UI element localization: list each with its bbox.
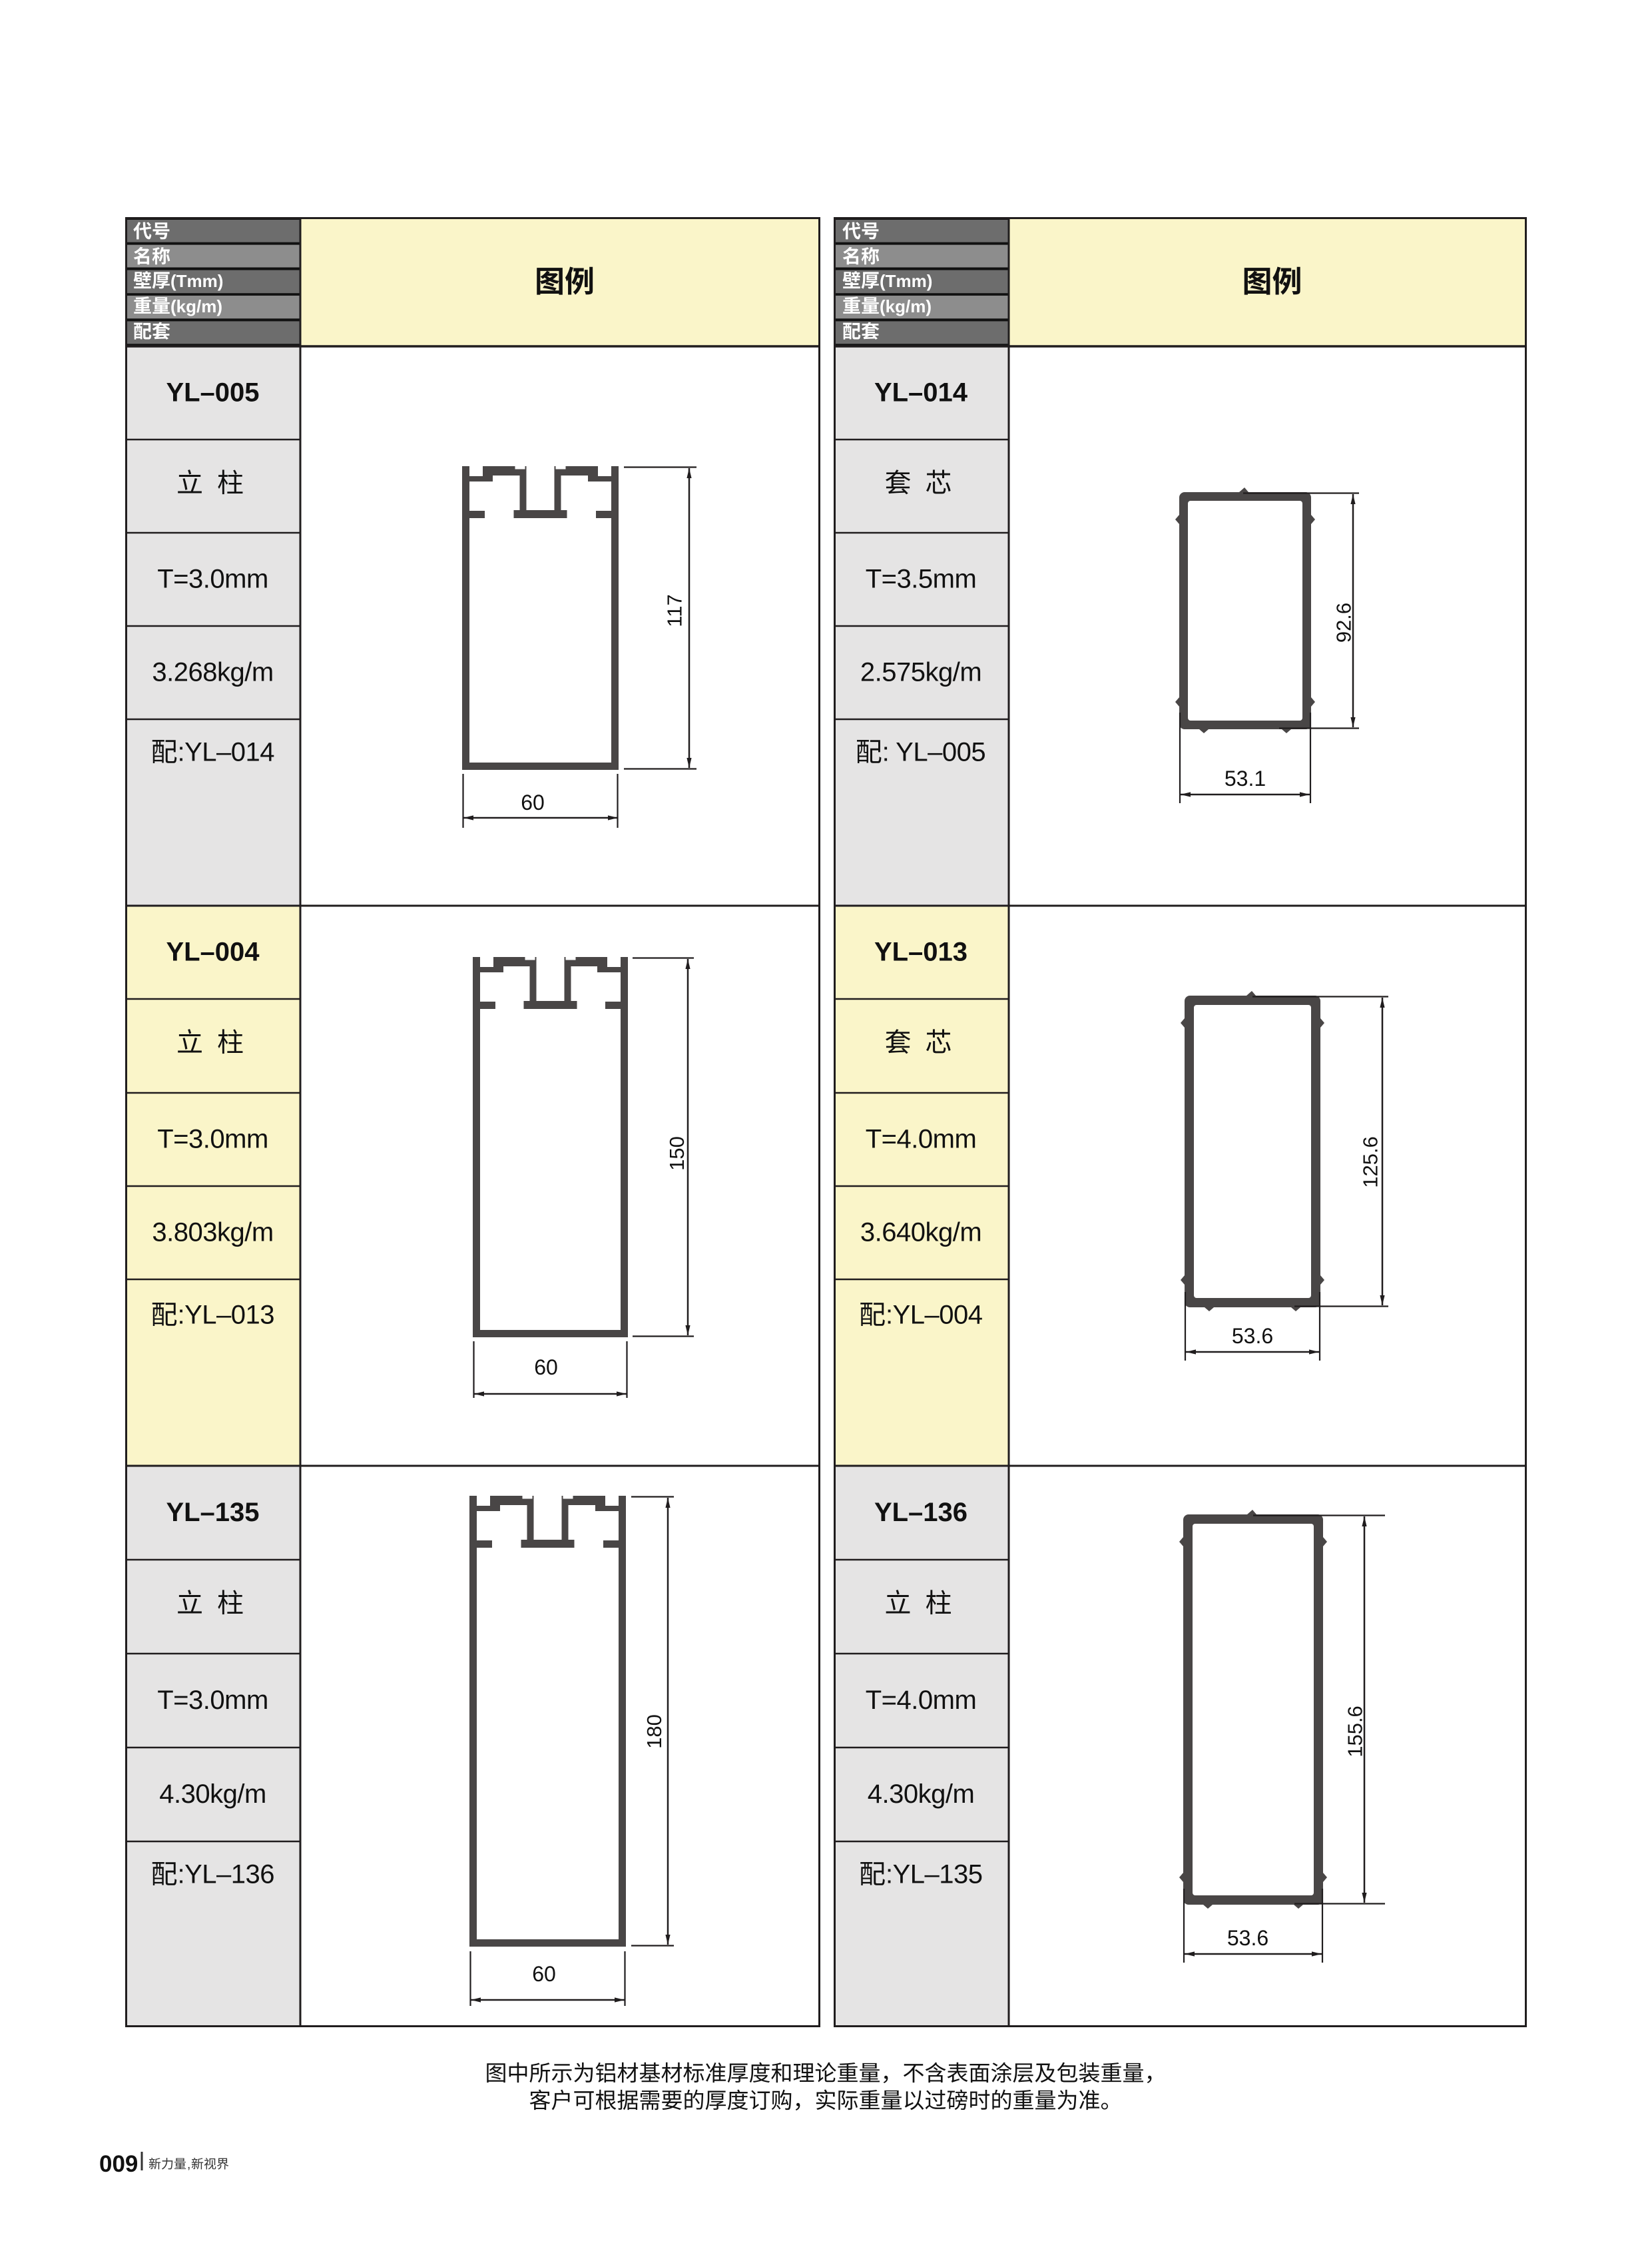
svg-text:(kg/m): (kg/m) — [170, 296, 222, 316]
svg-text:YL–013: YL–013 — [874, 938, 967, 967]
svg-text:2.575kg/m: 2.575kg/m — [860, 658, 981, 687]
svg-text:T=3.0mm: T=3.0mm — [157, 565, 268, 594]
svg-text:60: 60 — [534, 1355, 558, 1379]
svg-text:(Tmm): (Tmm) — [170, 271, 223, 291]
svg-text::YL–014: :YL–014 — [177, 738, 274, 767]
svg-text::YL–004: :YL–004 — [886, 1301, 983, 1330]
svg-text:3.803kg/m: 3.803kg/m — [152, 1218, 273, 1247]
svg-text:150: 150 — [665, 1136, 688, 1171]
svg-text:60: 60 — [521, 791, 545, 814]
svg-text:180: 180 — [643, 1714, 666, 1749]
svg-text:YL–136: YL–136 — [874, 1498, 967, 1527]
svg-text::YL–013: :YL–013 — [177, 1301, 274, 1330]
svg-text:53.6: 53.6 — [1227, 1926, 1268, 1950]
svg-text:YL–135: YL–135 — [166, 1498, 259, 1527]
svg-text:117: 117 — [663, 594, 686, 627]
svg-text:YL–004: YL–004 — [166, 938, 260, 967]
svg-text:T=4.0mm: T=4.0mm — [866, 1125, 977, 1154]
svg-text:155.6: 155.6 — [1343, 1706, 1366, 1758]
svg-text::YL–136: :YL–136 — [177, 1860, 274, 1889]
svg-text:53.6: 53.6 — [1232, 1324, 1273, 1348]
svg-text:T=3.0mm: T=3.0mm — [157, 1125, 268, 1154]
svg-text:(Tmm): (Tmm) — [880, 271, 932, 291]
svg-text:T=3.5mm: T=3.5mm — [866, 565, 977, 594]
svg-text:(kg/m): (kg/m) — [880, 296, 932, 316]
svg-text:: YL–005: : YL–005 — [882, 738, 985, 767]
svg-text:009: 009 — [99, 2151, 138, 2177]
svg-text:60: 60 — [532, 1962, 556, 1986]
svg-text:3.268kg/m: 3.268kg/m — [152, 658, 273, 687]
svg-text:,: , — [187, 2158, 190, 2172]
svg-text:T=3.0mm: T=3.0mm — [157, 1686, 268, 1715]
svg-text:T=4.0mm: T=4.0mm — [866, 1686, 977, 1715]
svg-text:4.30kg/m: 4.30kg/m — [159, 1779, 266, 1809]
svg-text:53.1: 53.1 — [1225, 767, 1266, 791]
svg-text:4.30kg/m: 4.30kg/m — [868, 1779, 975, 1809]
svg-text::YL–135: :YL–135 — [886, 1860, 983, 1889]
svg-text:125.6: 125.6 — [1358, 1136, 1382, 1188]
svg-text:YL–014: YL–014 — [874, 378, 968, 408]
svg-text:3.640kg/m: 3.640kg/m — [860, 1218, 981, 1247]
svg-text:92.6: 92.6 — [1332, 603, 1355, 643]
svg-text:YL–005: YL–005 — [166, 378, 259, 408]
